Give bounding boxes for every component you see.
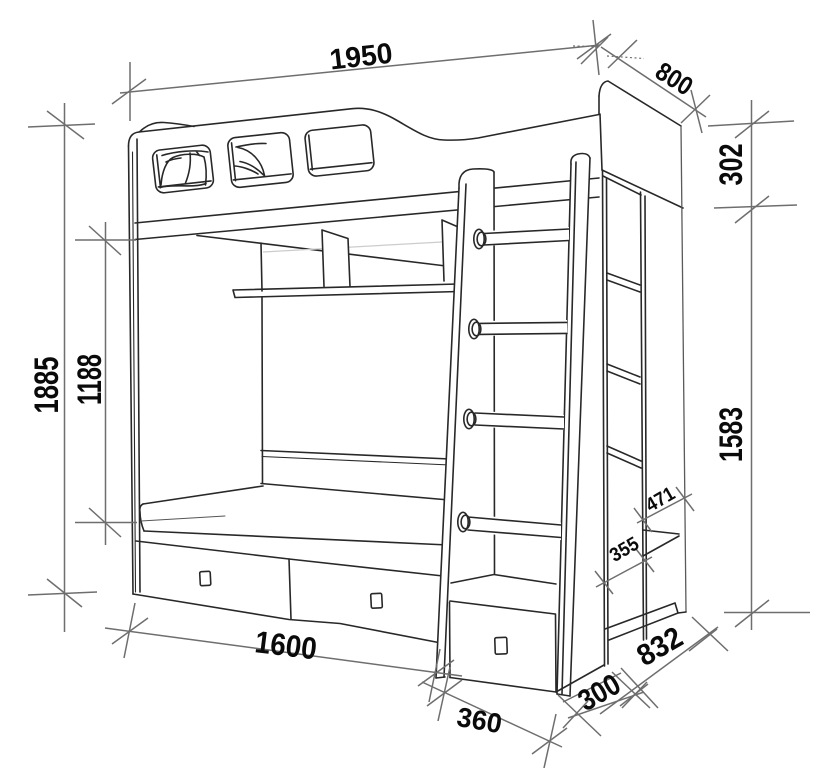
svg-text:1188: 1188	[71, 354, 109, 405]
svg-text:302: 302	[713, 144, 749, 186]
svg-text:1885: 1885	[28, 357, 66, 414]
svg-text:1583: 1583	[713, 407, 749, 462]
svg-text:1600: 1600	[253, 624, 319, 666]
